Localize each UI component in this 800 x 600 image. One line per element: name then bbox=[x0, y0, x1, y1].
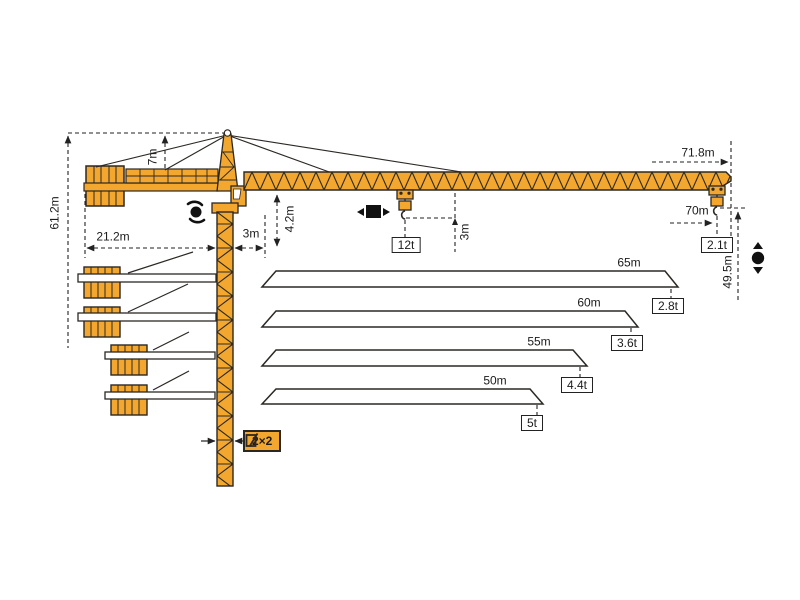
apex-pin bbox=[224, 130, 230, 136]
dim-hook-clearance-label: 3m bbox=[459, 224, 472, 241]
load-max-capacity-badge: 12t bbox=[392, 237, 421, 253]
counter-jib bbox=[84, 166, 218, 206]
counterweight-variant-4 bbox=[105, 371, 215, 415]
dim-jib-root-label: 4.2m bbox=[284, 206, 297, 233]
load-tip-full-jib-badge: 2.1t bbox=[701, 237, 733, 253]
dim-total-height-label: 61.2m bbox=[49, 196, 62, 229]
jib-variant-55m bbox=[262, 350, 587, 366]
jib-variant-length-60m: 60m bbox=[577, 297, 600, 310]
hoist-up-down-icon bbox=[752, 242, 764, 274]
mast-section-callout: 2×2 bbox=[243, 430, 281, 452]
jib-variant-load-55m: 4.4t bbox=[561, 377, 593, 393]
dim-tower-head-label: 7m bbox=[147, 149, 160, 166]
trolley-mid bbox=[397, 190, 413, 219]
crane-diagram-stage: 61.2m 7m 21.2m 3m 4.2m 3m 71.8m 70m 49.5… bbox=[0, 0, 800, 600]
jib-variant-load-50m: 5t bbox=[521, 415, 543, 431]
counterweight-variant-1 bbox=[78, 252, 216, 298]
main-jib bbox=[244, 172, 731, 190]
jib-variant-60m bbox=[262, 311, 638, 327]
jib-variant-load-60m: 3.6t bbox=[611, 335, 643, 351]
counterweight-variant-3 bbox=[105, 332, 215, 375]
counter-jib-lower-chord bbox=[84, 183, 218, 191]
dim-counter-radius-label: 21.2m bbox=[96, 231, 129, 244]
jib-variant-50m bbox=[262, 389, 543, 404]
trolley-travel-icon bbox=[357, 205, 390, 218]
jib-variant-length-55m: 55m bbox=[527, 336, 550, 349]
mast-section-icon bbox=[245, 432, 260, 448]
dim-max-radius-label: 71.8m bbox=[681, 147, 714, 160]
cab-window bbox=[234, 189, 242, 199]
dim-hook-radius-label: 70m bbox=[685, 205, 708, 218]
tower-mast bbox=[217, 212, 233, 486]
jib-variant-65m bbox=[262, 271, 678, 287]
jib-variant-length-65m: 65m bbox=[617, 257, 640, 270]
trolley-tip bbox=[709, 186, 725, 215]
slewing-rotation-icon bbox=[188, 202, 204, 222]
jib-variant-load-65m: 2.8t bbox=[652, 298, 684, 314]
jib-variant-length-50m: 50m bbox=[483, 375, 506, 388]
dim-hook-height-label: 49.5m bbox=[722, 255, 735, 288]
dim-slew-offset-label: 3m bbox=[243, 228, 260, 241]
counterweight-variants bbox=[78, 252, 216, 415]
